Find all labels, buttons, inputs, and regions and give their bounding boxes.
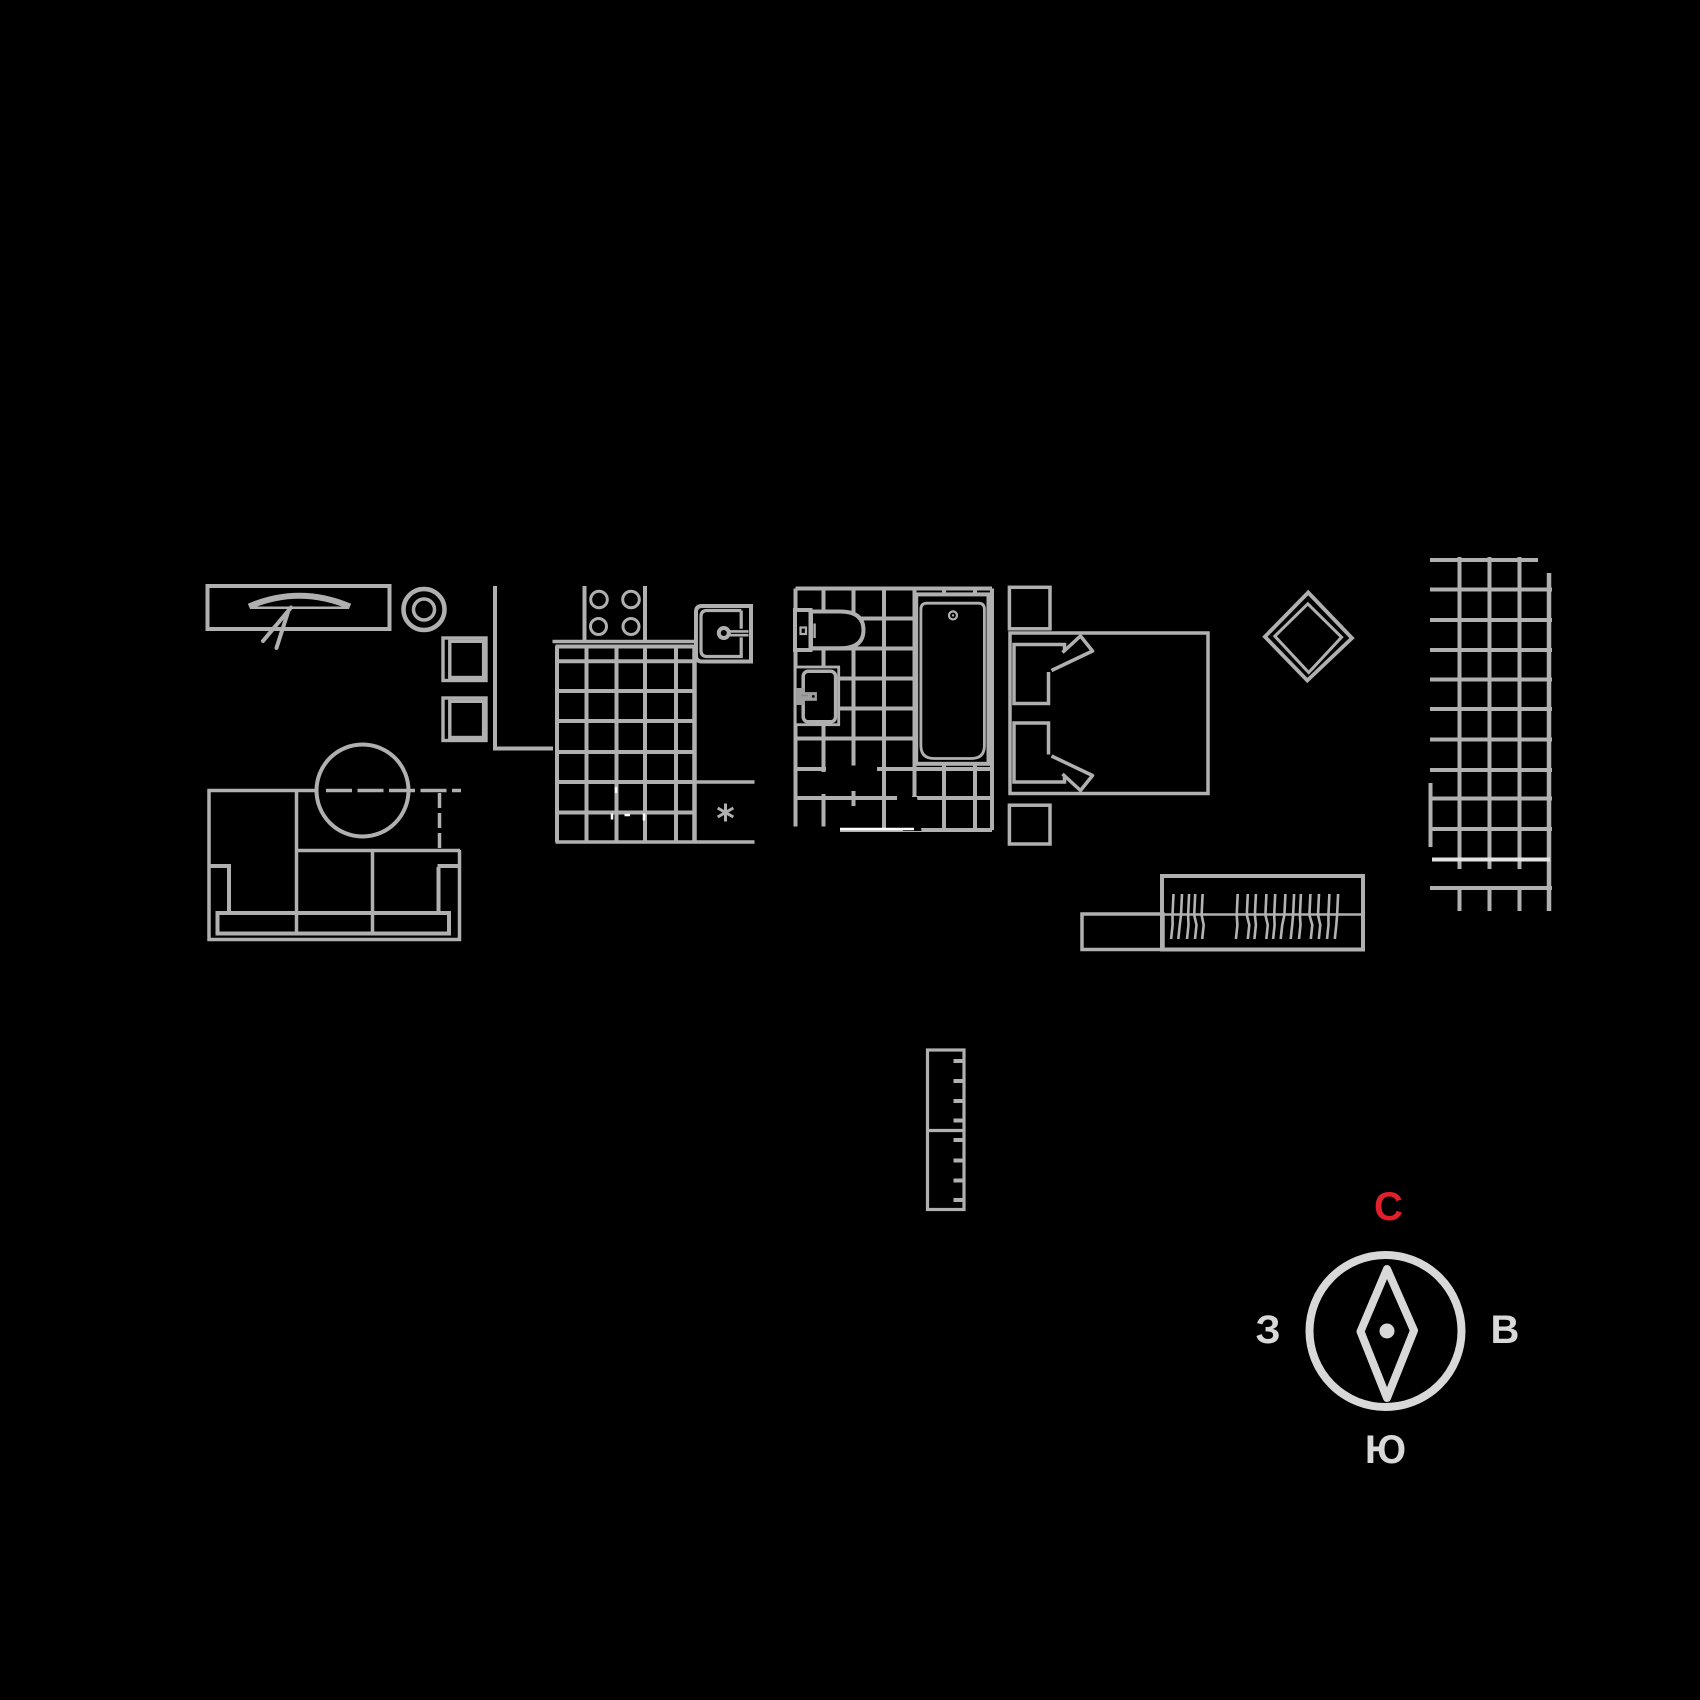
svg-text:З: З <box>1255 1308 1280 1352</box>
svg-text:С: С <box>1374 1185 1403 1229</box>
svg-text:Ю: Ю <box>1365 1428 1406 1472</box>
svg-text:В: В <box>1491 1308 1520 1352</box>
